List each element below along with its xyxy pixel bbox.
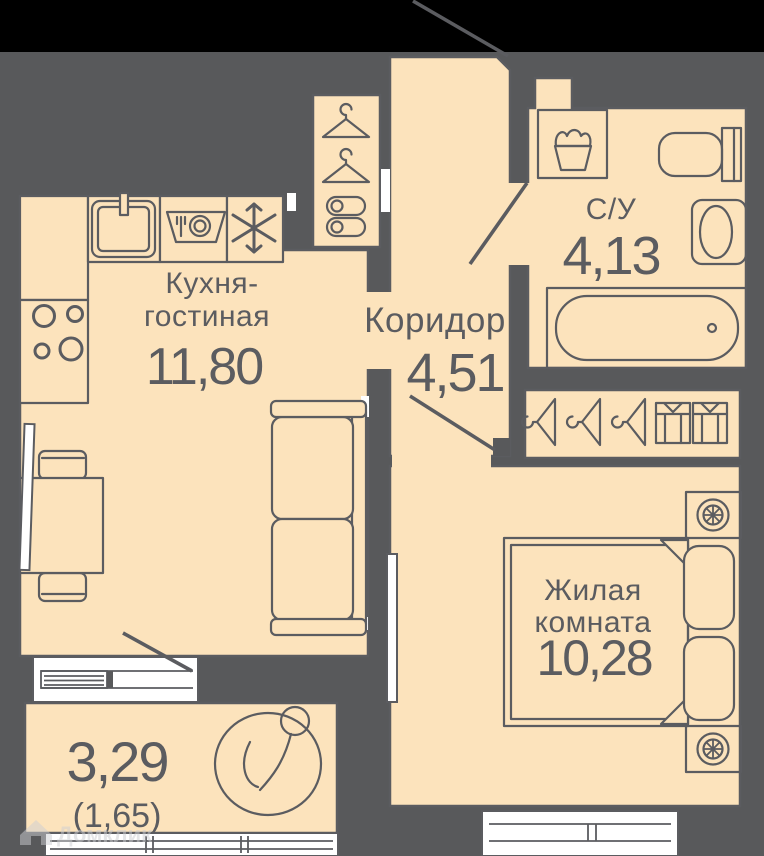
top-black-band	[0, 0, 764, 52]
corridor-area: 4,51	[406, 343, 503, 403]
counter-corner-cell	[20, 196, 88, 300]
door-marker-2	[381, 169, 390, 212]
watermark-brand: Домклик	[57, 822, 153, 847]
bathroom-area: 4,13	[562, 226, 659, 286]
kitchen-label-line2: гостиная	[144, 300, 270, 333]
balcony-area: 3,29	[67, 730, 168, 793]
bathroom-label: С/У	[586, 193, 637, 226]
opening-living-door	[392, 454, 491, 468]
wall-stub-living-door	[493, 438, 510, 456]
kitchen-area: 11,80	[146, 338, 262, 396]
room-wardrobe	[525, 390, 740, 458]
door-marker-1	[287, 193, 296, 211]
living-window	[482, 811, 678, 856]
floor-plan-canvas: Кухня- гостиная 11,80 Коридор 4,51 С/У 4…	[0, 0, 764, 856]
living-label-line1: Жилая	[544, 574, 641, 607]
sofa	[271, 401, 366, 635]
tv-icon	[387, 554, 397, 702]
living-area: 10,28	[536, 630, 651, 686]
floor-plan: Кухня- гостиная 11,80 Коридор 4,51 С/У 4…	[0, 0, 764, 856]
balcony-door-unit	[33, 657, 198, 702]
counter-dishwasher-cell	[160, 196, 227, 262]
kitchen-label-line1: Кухня-	[165, 267, 258, 300]
corridor-label: Коридор	[364, 301, 506, 340]
